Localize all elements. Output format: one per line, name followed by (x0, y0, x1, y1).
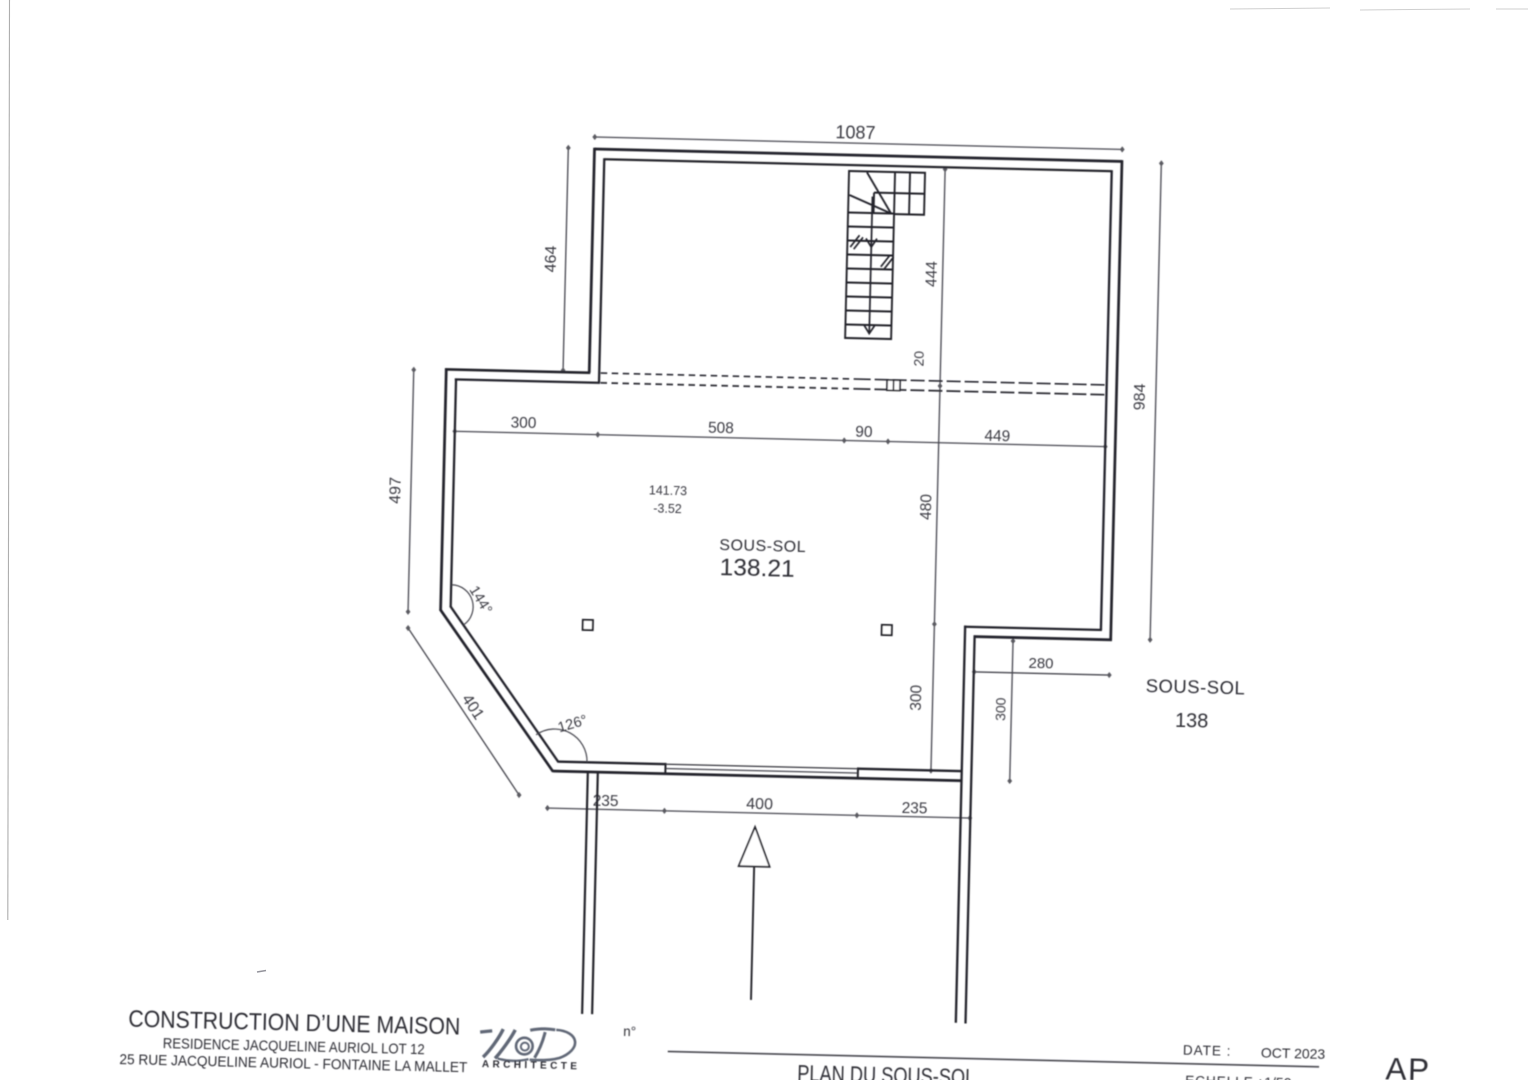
svg-text:90: 90 (855, 424, 873, 441)
svg-text:SOUS-SOL: SOUS-SOL (719, 537, 806, 556)
svg-text:449: 449 (984, 428, 1010, 446)
svg-text:497: 497 (387, 477, 405, 504)
svg-text:20: 20 (910, 351, 926, 367)
svg-text:SOUS-SOL: SOUS-SOL (1145, 675, 1245, 698)
svg-text:138.21: 138.21 (719, 554, 795, 583)
svg-text:126°: 126° (556, 712, 589, 736)
svg-text:984: 984 (1131, 383, 1149, 410)
svg-text:401: 401 (458, 691, 487, 723)
svg-text:400: 400 (746, 796, 773, 814)
svg-text:DATE :: DATE : (1183, 1043, 1232, 1059)
svg-text:280: 280 (1028, 655, 1053, 673)
svg-text:300: 300 (908, 684, 926, 711)
svg-text:141.73: 141.73 (649, 483, 688, 498)
svg-text:ECHELLE :: ECHELLE : (1185, 1073, 1263, 1080)
svg-text:CONSTRUCTION D’UNE MAISON: CONSTRUCTION D’UNE MAISON (128, 1006, 461, 1041)
svg-text:508: 508 (708, 420, 734, 438)
svg-text:444: 444 (923, 260, 941, 287)
svg-text:AP: AP (1385, 1050, 1431, 1080)
svg-text:1087: 1087 (835, 122, 876, 143)
svg-text:144°: 144° (466, 583, 495, 617)
svg-text:235: 235 (901, 800, 927, 818)
svg-text:464: 464 (543, 245, 561, 272)
svg-text:OCT 2023: OCT 2023 (1261, 1044, 1326, 1062)
svg-text:-3.52: -3.52 (653, 501, 682, 516)
svg-text:n°: n° (623, 1024, 636, 1039)
svg-text:ARCHITECTE: ARCHITECTE (482, 1059, 578, 1072)
svg-text:138: 138 (1175, 710, 1209, 733)
svg-text:480: 480 (918, 493, 936, 520)
svg-text:300: 300 (510, 415, 537, 433)
svg-text:300: 300 (992, 697, 1009, 721)
svg-text:PLAN DU SOUS-SOL: PLAN DU SOUS-SOL (797, 1060, 976, 1080)
svg-text:1/50: 1/50 (1264, 1074, 1292, 1080)
